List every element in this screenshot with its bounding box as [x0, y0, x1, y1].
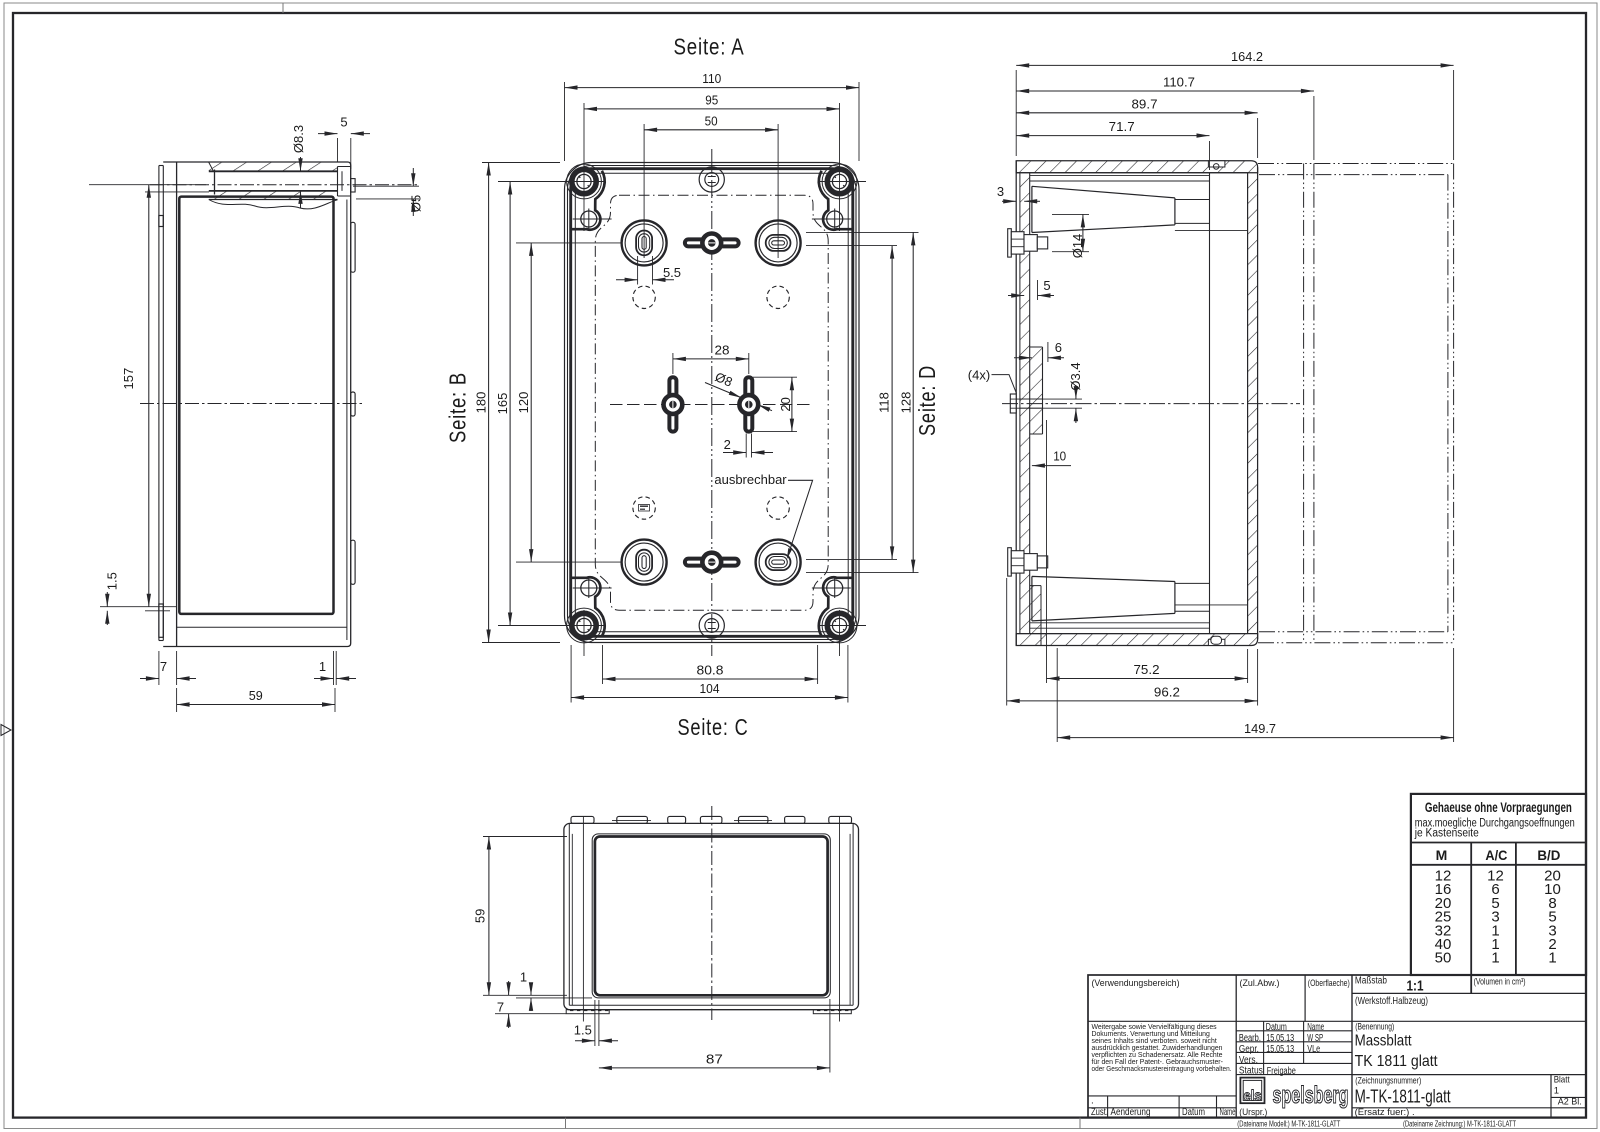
svg-text:5: 5	[1043, 278, 1050, 293]
svg-text:Seite: C: Seite: C	[678, 714, 749, 740]
svg-text:7: 7	[160, 659, 167, 674]
svg-text:Name: Name	[1220, 1107, 1236, 1118]
svg-text:Ø5: Ø5	[408, 195, 423, 212]
svg-text:für den Fall der Patent-. Gebr: für den Fall der Patent-. Gebrauchsmuste…	[1092, 1059, 1223, 1066]
svg-text:.: .	[1091, 1096, 1094, 1107]
svg-text:1: 1	[520, 970, 527, 985]
svg-text:Name: Name	[1307, 1022, 1324, 1033]
svg-text:Ø3.4: Ø3.4	[1068, 362, 1083, 390]
svg-text:75.2: 75.2	[1134, 662, 1160, 677]
svg-text:164.2: 164.2	[1231, 49, 1263, 64]
svg-text:118: 118	[877, 392, 892, 413]
svg-text:7: 7	[497, 1000, 504, 1015]
svg-text:(Verwendungsbereich): (Verwendungsbereich)	[1092, 978, 1180, 989]
svg-text:59: 59	[249, 688, 263, 703]
svg-text:(Volumen in cm³): (Volumen in cm³)	[1474, 977, 1526, 987]
svg-text:ausdrücklich gestattet. Zuwide: ausdrücklich gestattet. Zuwiderhandlunge…	[1092, 1045, 1223, 1052]
svg-text:15.05.13: 15.05.13	[1266, 1033, 1294, 1044]
svg-text:Blatt: Blatt	[1554, 1075, 1570, 1086]
svg-text:Massblatt: Massblatt	[1355, 1033, 1412, 1050]
svg-text:87: 87	[706, 1051, 723, 1066]
svg-text:Status: Status	[1239, 1066, 1263, 1077]
svg-text:VLe: VLe	[1307, 1044, 1320, 1055]
svg-text:(Benennung): (Benennung)	[1355, 1021, 1394, 1032]
svg-text:59: 59	[473, 909, 488, 923]
svg-text:104: 104	[700, 681, 720, 696]
svg-text:1:1: 1:1	[1407, 979, 1424, 995]
svg-text:Weitergabe sowie Vervielfältig: Weitergabe sowie Vervielfältigung dieses	[1092, 1024, 1218, 1031]
svg-text:89.7: 89.7	[1132, 96, 1158, 111]
svg-text:28: 28	[715, 342, 730, 357]
svg-text:6: 6	[1055, 340, 1062, 355]
svg-text:3: 3	[997, 184, 1004, 199]
svg-text:165: 165	[495, 393, 510, 415]
svg-text:verpflichten zu Schadenersatz.: verpflichten zu Schadenersatz. Alle Rech…	[1092, 1052, 1223, 1059]
svg-text:M: M	[1436, 847, 1448, 863]
svg-text:95: 95	[705, 92, 718, 107]
svg-text:71.7: 71.7	[1109, 119, 1135, 134]
svg-text:50: 50	[1435, 950, 1452, 967]
svg-text:Freigabe: Freigabe	[1267, 1066, 1296, 1077]
svg-text:10: 10	[1053, 448, 1066, 463]
svg-text:Datum: Datum	[1266, 1022, 1287, 1033]
svg-text:Dokuments. Verwertung und Mitt: Dokuments. Verwertung und Mitteilung	[1092, 1031, 1211, 1038]
svg-text:B/D: B/D	[1537, 847, 1560, 863]
svg-text:Datum: Datum	[1182, 1107, 1205, 1118]
svg-text:Bearb.: Bearb.	[1239, 1033, 1261, 1044]
svg-text:(Zeichnungsnummer): (Zeichnungsnummer)	[1355, 1076, 1421, 1087]
svg-text:80.8: 80.8	[697, 663, 724, 678]
svg-text:TK 1811 glatt: TK 1811 glatt	[1355, 1053, 1438, 1070]
svg-text:Vers.: Vers.	[1239, 1055, 1258, 1066]
svg-text:1.5: 1.5	[574, 1022, 592, 1037]
svg-text:Aenderung: Aenderung	[1111, 1107, 1151, 1118]
svg-text:1: 1	[1554, 1086, 1559, 1097]
svg-text:110: 110	[702, 71, 721, 86]
svg-text:(4x): (4x)	[968, 367, 990, 382]
svg-text:oder Geschmacksmustereintragun: oder Geschmacksmustereintragung vorbehal…	[1092, 1066, 1232, 1073]
svg-text:128: 128	[898, 392, 913, 414]
svg-text:5.5: 5.5	[663, 265, 681, 280]
svg-text:ausbrechbar: ausbrechbar	[714, 472, 787, 487]
svg-text:(Ersatz fuer:) .: (Ersatz fuer:) .	[1355, 1107, 1415, 1118]
svg-text:1.5: 1.5	[104, 572, 119, 590]
svg-text:15.05.13: 15.05.13	[1266, 1044, 1294, 1055]
svg-text:180: 180	[474, 392, 489, 414]
svg-text:(Zul.Abw.): (Zul.Abw.)	[1240, 978, 1280, 989]
svg-text:els: els	[1244, 1088, 1262, 1105]
svg-text:M-TK-1811-glatt: M-TK-1811-glatt	[1355, 1087, 1451, 1107]
svg-text:Zust.: Zust.	[1091, 1107, 1108, 1118]
svg-text:Seite: D: Seite: D	[914, 365, 940, 436]
svg-text:Gepr.: Gepr.	[1239, 1044, 1259, 1055]
svg-text:spelsberg: spelsberg	[1273, 1082, 1349, 1109]
svg-text:(Werkstoff.Halbzeug): (Werkstoff.Halbzeug)	[1355, 995, 1428, 1007]
svg-text:149.7: 149.7	[1244, 721, 1276, 736]
svg-text:A2 Bl.: A2 Bl.	[1558, 1096, 1582, 1107]
svg-text:(Urspr.): (Urspr.)	[1239, 1107, 1267, 1118]
svg-text:Ø14: Ø14	[1070, 234, 1085, 259]
svg-text:seines Inhalts sind verboten.: seines Inhalts sind verboten. soweit nic…	[1092, 1038, 1217, 1045]
svg-text:je Kastenseite: je Kastenseite	[1414, 827, 1479, 839]
svg-text:157: 157	[121, 368, 136, 390]
svg-text:120: 120	[516, 392, 531, 414]
svg-text:5: 5	[340, 115, 347, 130]
svg-text:1: 1	[1491, 950, 1499, 967]
svg-text:Ø8.3: Ø8.3	[291, 125, 306, 153]
svg-text:Seite: A: Seite: A	[674, 34, 745, 60]
svg-text:(Dateiname Modell:) M-TK-1811-: (Dateiname Modell:) M-TK-1811-GLATT	[1237, 1119, 1340, 1128]
svg-text:1: 1	[1548, 950, 1556, 967]
svg-text:1: 1	[319, 659, 326, 674]
svg-text:96.2: 96.2	[1154, 684, 1180, 699]
svg-text:Gehaeuse ohne Vorpraegungen: Gehaeuse ohne Vorpraegungen	[1425, 800, 1572, 815]
svg-text:110.7: 110.7	[1163, 75, 1195, 90]
svg-text:Seite: B: Seite: B	[445, 372, 471, 443]
svg-text:(Oberflaeche): (Oberflaeche)	[1308, 978, 1350, 989]
svg-text:W SP: W SP	[1307, 1033, 1323, 1044]
svg-text:50: 50	[705, 113, 718, 128]
svg-text:A/C: A/C	[1485, 847, 1507, 863]
svg-text:(Dateiname Zeichnung:) M-TK-18: (Dateiname Zeichnung:) M-TK-1811-GLATT	[1403, 1119, 1516, 1128]
svg-text:2: 2	[724, 437, 731, 452]
svg-text:Maßstab: Maßstab	[1355, 976, 1387, 987]
svg-text:20: 20	[778, 397, 793, 411]
